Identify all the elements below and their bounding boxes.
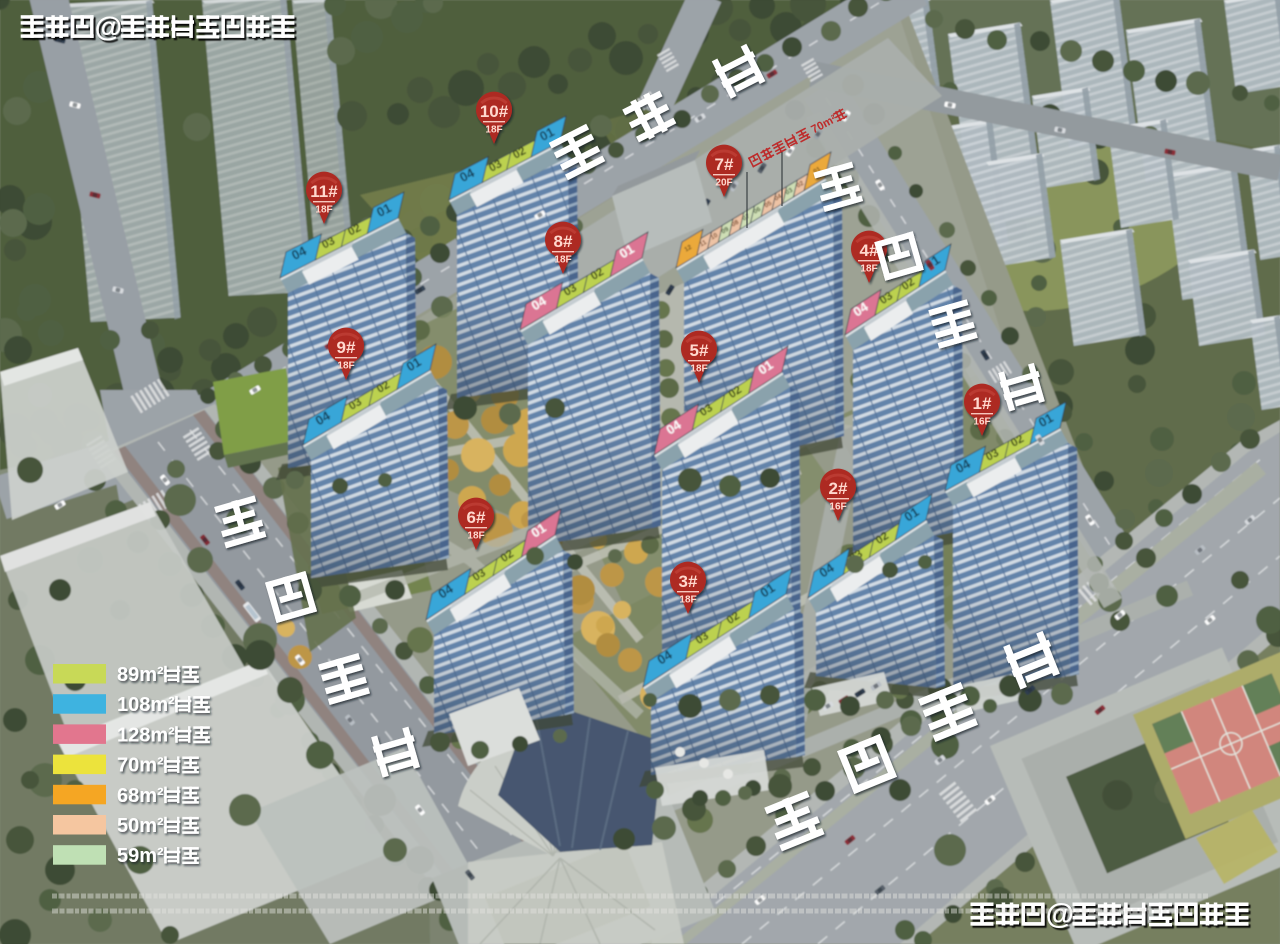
svg-text:@: @ [1046, 899, 1074, 931]
svg-text:89m²: 89m² [117, 664, 164, 686]
svg-text:18F: 18F [860, 264, 877, 275]
svg-text:18F: 18F [690, 364, 707, 375]
svg-text:6#: 6# [467, 508, 486, 527]
svg-text:5#: 5# [690, 341, 709, 360]
svg-text:108m²: 108m² [117, 694, 175, 716]
svg-text:59m²: 59m² [117, 845, 164, 867]
svg-text:9#: 9# [337, 338, 356, 357]
svg-text:50m²: 50m² [117, 815, 164, 837]
svg-text:11#: 11# [310, 182, 338, 201]
svg-text:128m²: 128m² [117, 724, 175, 746]
svg-text:18F: 18F [467, 531, 484, 542]
svg-text:70m²: 70m² [117, 755, 164, 777]
svg-text:16F: 16F [973, 417, 990, 428]
svg-text:68m²: 68m² [117, 785, 164, 807]
svg-text:18F: 18F [337, 361, 354, 372]
svg-text:8#: 8# [554, 232, 573, 251]
svg-text:18F: 18F [679, 595, 696, 606]
svg-text:10#: 10# [480, 102, 509, 121]
svg-text:1#: 1# [973, 394, 992, 413]
svg-text:7#: 7# [715, 155, 734, 174]
svg-text:18F: 18F [554, 255, 571, 266]
svg-text:16F: 16F [829, 502, 846, 513]
svg-text:2#: 2# [829, 479, 848, 498]
svg-text:@: @ [95, 11, 122, 42]
svg-text:20F: 20F [715, 178, 732, 189]
svg-text:18F: 18F [315, 205, 332, 216]
svg-text:3#: 3# [679, 572, 698, 591]
svg-text:18F: 18F [485, 125, 502, 136]
